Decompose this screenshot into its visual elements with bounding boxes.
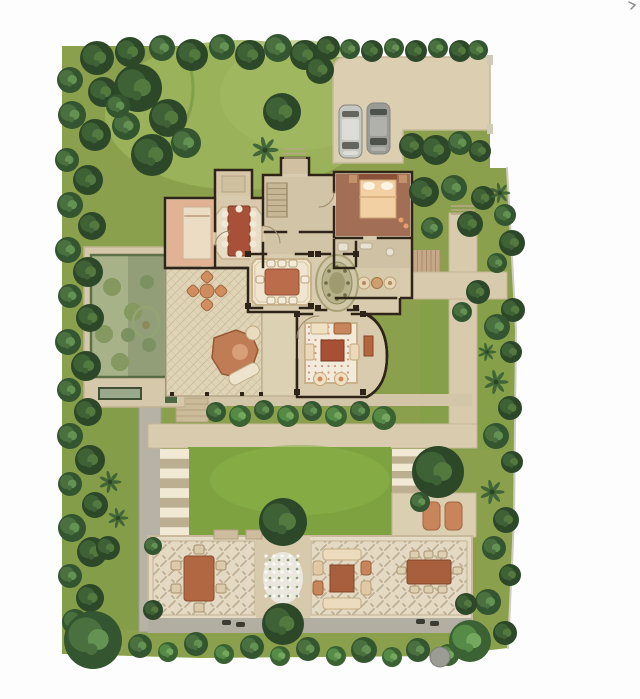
- garden-path-vertical: [449, 213, 477, 445]
- bath-fixture-1: [338, 243, 348, 251]
- tree: [457, 211, 483, 237]
- tree: [76, 304, 104, 332]
- tree: [214, 644, 234, 664]
- bath-fixture-2: [360, 243, 372, 249]
- parked-car-2: [367, 103, 390, 154]
- bow-console: [364, 336, 373, 356]
- tree: [184, 632, 208, 656]
- tree: [296, 637, 320, 661]
- tree: [76, 584, 104, 612]
- tree: [58, 284, 82, 308]
- tree: [55, 329, 81, 355]
- tree: [171, 128, 201, 158]
- right-seating-chair-3: [361, 561, 371, 575]
- tree: [412, 446, 464, 498]
- garden-topiary-center: [142, 321, 150, 329]
- tree: [350, 401, 370, 421]
- left-pavilion-dining-table: [184, 556, 214, 601]
- living-sofa-1: [311, 323, 328, 334]
- tree: [55, 148, 79, 172]
- tree: [483, 423, 509, 449]
- tree: [58, 472, 82, 496]
- tree: [455, 593, 477, 615]
- breakfast-table: [372, 278, 383, 289]
- ne-bed-headboard: [359, 174, 397, 180]
- tree: [468, 40, 488, 60]
- tree: [399, 133, 425, 159]
- tree: [351, 637, 377, 663]
- garden-water-trough: [99, 388, 141, 399]
- tree: [340, 39, 360, 59]
- tree: [176, 39, 208, 71]
- tree: [79, 119, 111, 151]
- tree: [57, 67, 83, 93]
- tree: [209, 34, 235, 60]
- right-seating-sofa-bottom: [323, 598, 361, 609]
- tree: [409, 177, 439, 207]
- tree: [58, 514, 86, 542]
- tree: [428, 38, 448, 58]
- tree: [64, 611, 122, 669]
- tree: [74, 398, 102, 426]
- tree: [277, 405, 299, 427]
- right-seating-chair-2: [313, 581, 323, 595]
- tree: [270, 646, 290, 666]
- living-side-chair-right: [350, 344, 359, 360]
- tree: [80, 41, 114, 75]
- tree: [264, 34, 292, 62]
- courtyard-bench-1: [214, 530, 238, 539]
- tree: [325, 405, 347, 427]
- tree: [73, 257, 103, 287]
- tree: [57, 192, 83, 218]
- tree: [240, 635, 264, 659]
- tree: [487, 253, 507, 273]
- tree: [326, 646, 346, 666]
- tree: [421, 135, 451, 165]
- west-bedroom-bed: [183, 207, 211, 259]
- tree: [448, 131, 472, 155]
- tree: [82, 492, 108, 518]
- tree: [73, 165, 103, 195]
- tree: [115, 37, 145, 67]
- tree: [235, 40, 265, 70]
- tree: [158, 642, 178, 662]
- tree: [263, 93, 301, 131]
- lower-lawn-sheen: [210, 445, 390, 515]
- tree: [128, 634, 152, 658]
- tree: [494, 204, 516, 226]
- right-seating-sofa-top: [323, 549, 361, 560]
- tree: [144, 537, 162, 555]
- tree: [254, 400, 274, 420]
- tree: [78, 212, 106, 240]
- sun-lounger-2: [445, 502, 462, 530]
- tree: [361, 40, 383, 62]
- tree: [262, 603, 304, 645]
- living-sofa-2: [334, 323, 351, 334]
- tree: [206, 402, 226, 422]
- gate-post-bottom: [487, 124, 493, 134]
- tree: [499, 230, 525, 256]
- tree: [493, 621, 517, 645]
- garden-path-horizontal: [403, 272, 507, 299]
- foyer-medallion-core: [329, 272, 345, 294]
- garden-boulder: [430, 647, 450, 667]
- tree: [449, 40, 471, 62]
- tree: [475, 589, 501, 615]
- ne-bed-pillow-2: [381, 182, 393, 190]
- tree: [106, 94, 130, 118]
- tree: [143, 600, 163, 620]
- master-bed: [228, 206, 250, 256]
- tree: [57, 423, 83, 449]
- right-seating-chair-1: [313, 561, 323, 575]
- right-seating-chair-4: [361, 581, 371, 595]
- tree: [482, 536, 506, 560]
- bath-fixture-3: [386, 248, 394, 256]
- tree: [421, 217, 443, 239]
- courtyard-bench-2: [246, 530, 262, 539]
- right-pavilion-dining-table: [407, 560, 451, 584]
- tree: [55, 237, 81, 263]
- tree: [229, 405, 251, 427]
- ne-bed-pillow-1: [363, 182, 375, 190]
- tree: [58, 101, 86, 129]
- terrace-walk-south: [148, 424, 477, 448]
- veranda-round-chair: [246, 326, 260, 340]
- veranda-sofa-cushion: [232, 344, 248, 360]
- site-plan-image: [0, 0, 640, 699]
- tree: [501, 451, 523, 473]
- tree: [71, 351, 101, 381]
- tree: [452, 302, 472, 322]
- tree: [384, 38, 404, 58]
- tree: [406, 638, 430, 662]
- right-seating-table: [330, 565, 354, 592]
- tree: [469, 140, 491, 162]
- tree: [500, 341, 522, 363]
- gate-post-top: [487, 55, 493, 65]
- pergola-stripes-west: [160, 449, 189, 538]
- tree: [382, 647, 402, 667]
- tree: [410, 492, 430, 512]
- site-plan-svg: [0, 0, 640, 699]
- veranda-table: [200, 284, 214, 298]
- tree: [498, 396, 522, 420]
- tree: [58, 564, 82, 588]
- living-side-chair-left: [305, 344, 314, 360]
- tree: [405, 40, 427, 62]
- tree: [372, 406, 396, 430]
- entry-porch-floor: [283, 159, 307, 174]
- tree: [149, 35, 175, 61]
- tree: [96, 536, 120, 560]
- parked-car-1: [339, 105, 362, 158]
- mid-terrace: [262, 310, 298, 396]
- tree: [484, 314, 510, 340]
- bay-closet-inner: [222, 176, 245, 192]
- tree: [259, 498, 307, 546]
- living-coffee-table: [321, 340, 344, 361]
- tree: [306, 56, 334, 84]
- tree: [302, 401, 322, 421]
- tree: [466, 280, 490, 304]
- dining-table: [265, 269, 299, 295]
- tree: [57, 378, 81, 402]
- tree: [131, 134, 173, 176]
- tree: [441, 175, 467, 201]
- tree: [75, 445, 105, 475]
- tree: [499, 564, 521, 586]
- tree: [493, 507, 519, 533]
